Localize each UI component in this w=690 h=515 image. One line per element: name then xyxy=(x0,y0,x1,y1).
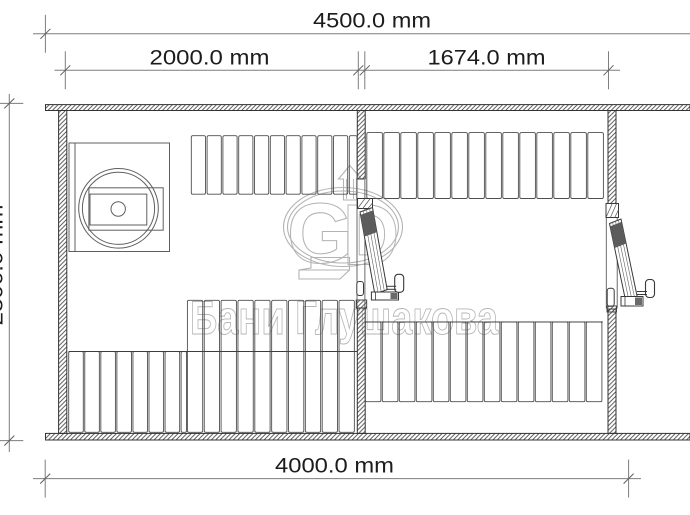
svg-text:2300.0 mm: 2300.0 mm xyxy=(0,205,8,326)
svg-text:4500.0 mm: 4500.0 mm xyxy=(313,9,431,33)
svg-text:2000.0 mm: 2000.0 mm xyxy=(150,46,270,70)
svg-text:1674.0 mm: 1674.0 mm xyxy=(428,46,546,70)
svg-text:4000.0 mm: 4000.0 mm xyxy=(275,454,394,478)
